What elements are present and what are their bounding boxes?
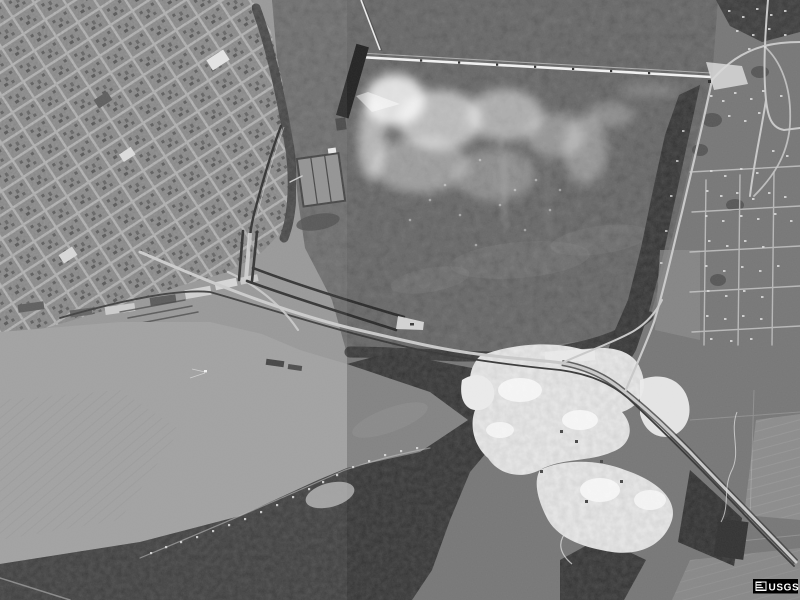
usgs-flag-icon <box>756 582 767 592</box>
film-grain <box>0 0 800 600</box>
aerial-photo-viewport[interactable]: USGS <box>0 0 800 600</box>
usgs-watermark: USGS <box>753 579 799 594</box>
usgs-aerial-photo: USGS <box>0 0 800 600</box>
usgs-logo-text: USGS <box>769 583 800 594</box>
